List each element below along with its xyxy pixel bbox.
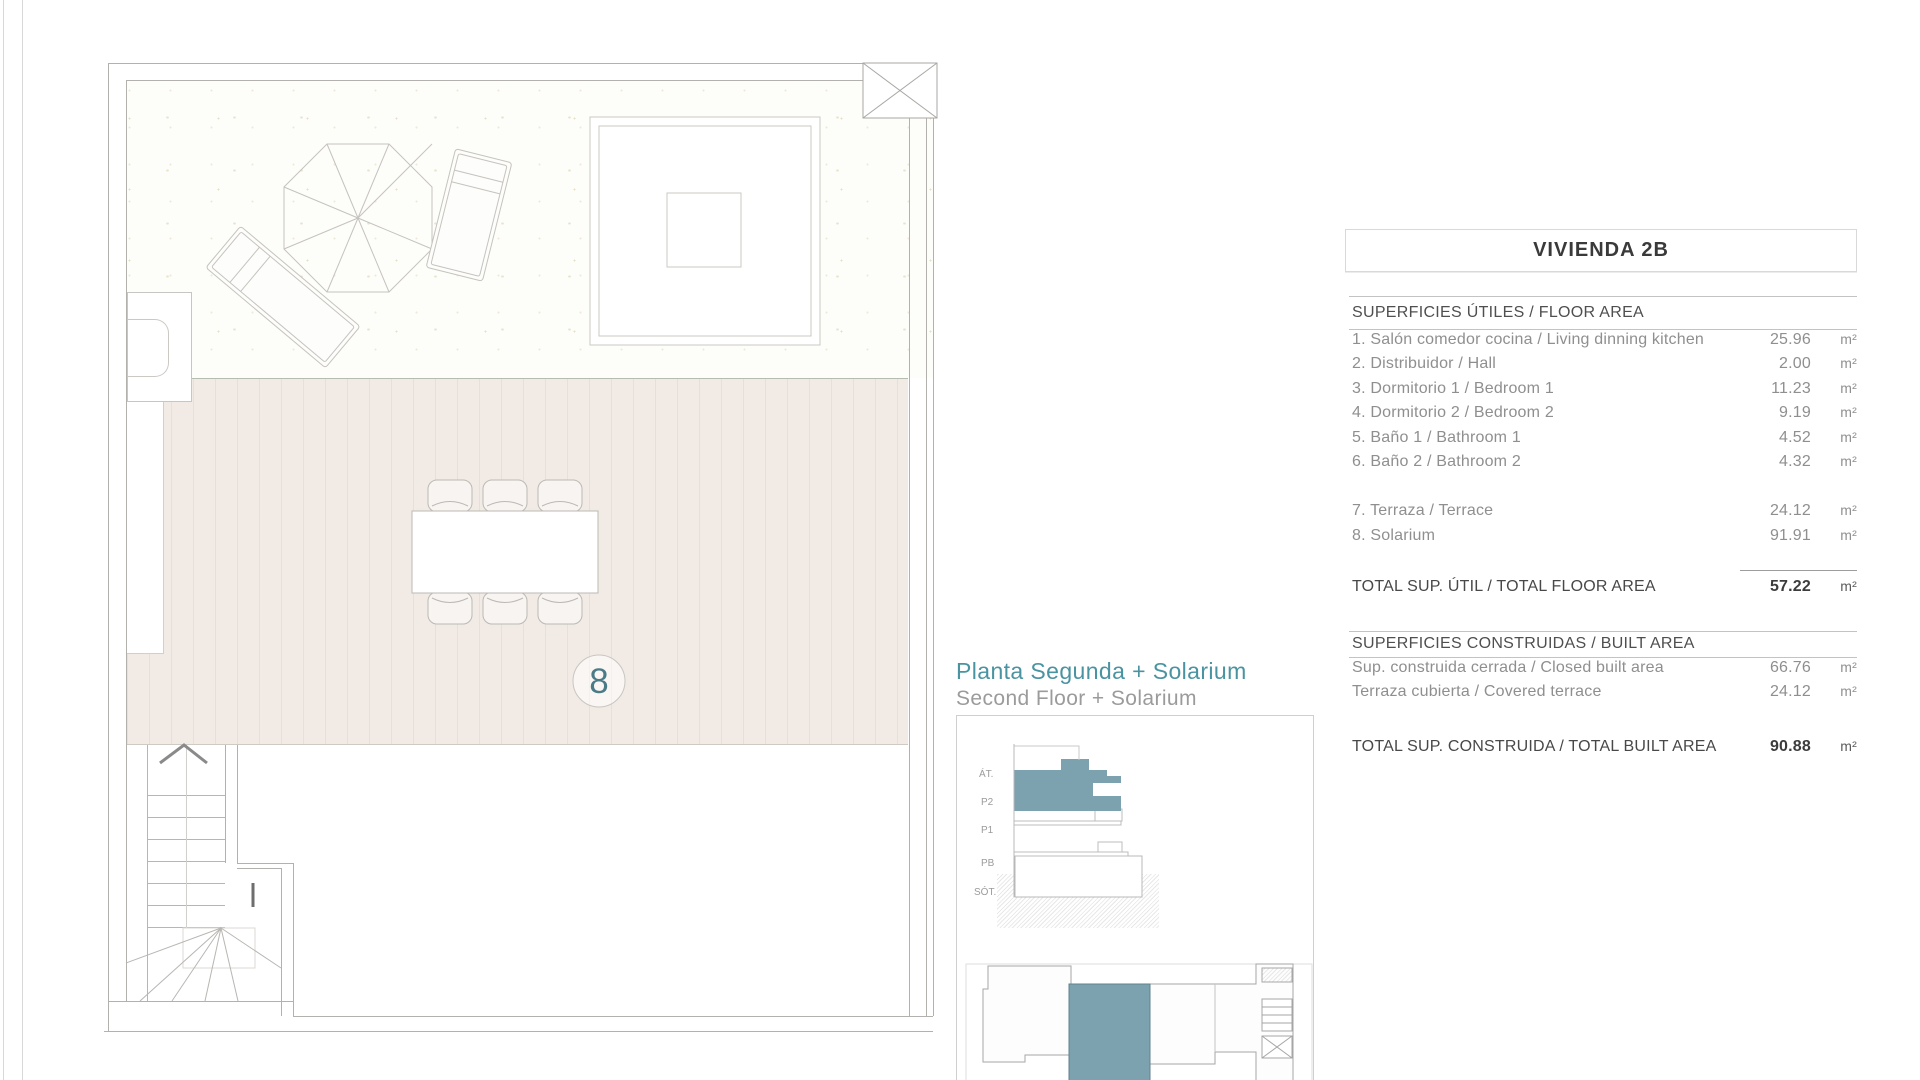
elevator-shaft [1262, 1036, 1292, 1058]
building-section-diagram: ÁT. P2 P1 PB SÓT. [974, 744, 1159, 928]
key-diagrams: ÁT. P2 P1 PB SÓT. [957, 716, 1313, 1080]
stair-direction-arrow [160, 745, 207, 763]
unit-number-badge: 8 [573, 655, 625, 707]
key-plan-diagram [966, 964, 1312, 1080]
unit-title-box: VIVIENDA 2B [1345, 229, 1857, 272]
table-row: 1. Salón comedor cocina / Living dinning… [1352, 331, 1857, 353]
skylight [590, 117, 820, 345]
table-row: 4. Dormitorio 2 / Bedroom 2 9.19 m² [1352, 404, 1857, 426]
table-row: 6. Baño 2 / Bathroom 2 4.32 m² [1352, 453, 1857, 475]
rule [1349, 329, 1857, 330]
plan-caption-en: Second Floor + Solarium [956, 687, 1197, 711]
highlighted-floors [1014, 759, 1121, 811]
highlighted-unit [1069, 984, 1150, 1080]
dining-set [412, 480, 598, 624]
rule [1349, 631, 1857, 632]
vent-shaft [1262, 968, 1292, 982]
unit-number: 8 [589, 662, 608, 701]
floor-label: SÓT. [974, 885, 996, 898]
floor-label: P1 [981, 825, 994, 836]
built-area-header: SUPERFICIES CONSTRUIDAS / BUILT AREA [1352, 635, 1695, 653]
table-row: Sup. construida cerrada / Closed built a… [1352, 659, 1857, 681]
rule [1740, 570, 1857, 571]
core-stairs [1262, 999, 1292, 1031]
key-diagram-box: ÁT. P2 P1 PB SÓT. [956, 715, 1314, 1080]
unit-title: VIVIENDA 2B [1533, 239, 1669, 262]
staircase [126, 745, 281, 1001]
table-row: 3. Dormitorio 1 / Bedroom 1 11.23 m² [1352, 380, 1857, 402]
plan-caption-es: Planta Segunda + Solarium [956, 658, 1247, 685]
sun-lounger-icon [206, 226, 360, 368]
floor-area-header: SUPERFICIES ÚTILES / FLOOR AREA [1352, 304, 1644, 322]
floor-label: ÁT. [979, 767, 993, 780]
floor-area-total-row: TOTAL SUP. ÚTIL / TOTAL FLOOR AREA 57.22… [1352, 578, 1857, 600]
rule [1349, 296, 1857, 297]
sun-lounger-icon [426, 149, 512, 281]
dining-table [412, 511, 598, 593]
parasol-icon [284, 144, 432, 292]
table-row: Terraza cubierta / Covered terrace 24.12… [1352, 683, 1857, 705]
table-row: 2. Distribuidor / Hall 2.00 m² [1352, 355, 1857, 377]
table-row: 5. Baño 1 / Bathroom 1 4.52 m² [1352, 429, 1857, 451]
table-row: 7. Terraza / Terrace 24.12 m² [1352, 502, 1857, 524]
floor-label: PB [981, 858, 995, 869]
floor-label: P2 [981, 797, 994, 808]
built-area-total-row: TOTAL SUP. CONSTRUIDA / TOTAL BUILT AREA… [1352, 738, 1857, 760]
rule [1349, 657, 1857, 658]
floor-plan-sheet: 8 VIVIENDA 2B SUPERFICIES ÚTILES / FLOOR… [0, 0, 1920, 1080]
shaft-symbol [863, 63, 937, 118]
table-row: 8. Solarium 91.91 m² [1352, 527, 1857, 549]
